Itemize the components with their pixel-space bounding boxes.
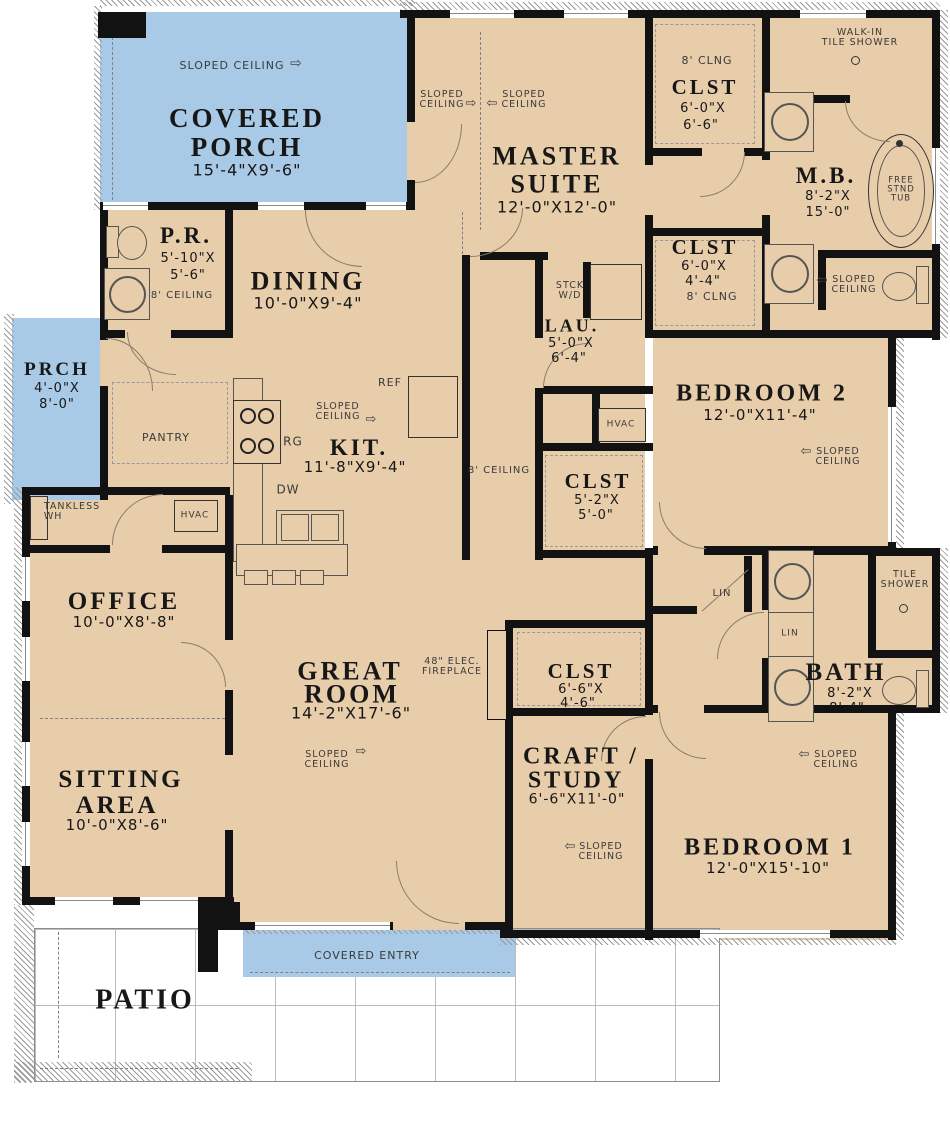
toilet-tank <box>916 266 929 304</box>
room-label-covered-porch: PORCH <box>191 133 304 161</box>
wall <box>868 556 876 658</box>
pantry-shelving <box>112 382 228 464</box>
room-dims-master-closet2: 6'-0"X <box>681 260 727 274</box>
sloped-ceiling-text: CEILING <box>579 852 624 862</box>
room-dims-prch: 8'-0" <box>39 398 75 412</box>
sloped-ceiling-label: SLOPED CEILING <box>180 60 285 72</box>
sloped-ceiling-text: CEILING <box>305 760 350 770</box>
sloped-ceiling-label: SLOPEDCEILING <box>832 275 877 295</box>
room-dims-hall-closet: 5'-2"X <box>574 494 620 508</box>
room-label-craft-study: STUDY <box>528 768 624 793</box>
door-opening <box>225 640 233 690</box>
door-opening <box>407 122 415 180</box>
wall <box>653 606 697 614</box>
room-dims-kitchen: 11'-8"X9'-4" <box>304 460 407 476</box>
sloped-ceiling-text: CEILING <box>420 100 465 110</box>
linen-label: LIN <box>712 589 731 600</box>
sloped-ceiling-label: SLOPEDCEILING <box>420 90 465 110</box>
sloped-ceiling-text: CEILING <box>832 285 877 295</box>
sloped-ceiling-text: CEILING <box>502 100 547 110</box>
room-label-bedroom2: BEDROOM 2 <box>676 381 848 406</box>
patio-left-hatch <box>14 905 34 1083</box>
wall <box>818 250 940 258</box>
arrow-right-icon: ⇨ <box>466 97 477 111</box>
tub-text: TUB <box>887 194 915 203</box>
room-dims-craft-closet: 6'-6"X <box>558 683 604 697</box>
wall <box>162 545 226 553</box>
sink-basin <box>281 514 309 541</box>
exterior-hatch <box>4 314 14 504</box>
stool-icon <box>244 570 268 585</box>
ceiling-break-line <box>480 32 481 230</box>
toilet-icon <box>117 226 147 260</box>
stool-icon <box>300 570 324 585</box>
room-label-dining: DINING <box>251 267 366 294</box>
arrow-right-icon: ⇨ <box>290 57 302 72</box>
window <box>700 930 830 938</box>
window <box>22 557 30 601</box>
sloped-ceiling-text: CEILING <box>816 457 861 467</box>
sloped-ceiling-text: CEILING <box>814 760 859 770</box>
room-dims-master-bath: 8'-2"X <box>805 190 851 204</box>
room-label-craft-study: CRAFT / <box>523 744 639 769</box>
wall <box>198 930 218 972</box>
floor-office-sitting <box>30 495 225 897</box>
wall <box>888 705 940 713</box>
refrigerator-label: REF <box>378 377 402 389</box>
fireplace-icon <box>487 630 507 720</box>
burner-icon <box>258 438 274 454</box>
window <box>888 407 896 542</box>
hvac-label: HVAC <box>607 420 636 429</box>
room-dims-laundry: 5'-0"X <box>548 337 594 351</box>
sink-icon <box>774 563 811 600</box>
door-opening <box>645 165 653 215</box>
room-label-office: OFFICE <box>68 589 180 615</box>
wall <box>462 255 470 560</box>
linen-label: LIN <box>781 629 798 638</box>
room-label-sitting-area: SITTING <box>58 767 183 793</box>
door-opening <box>225 755 233 830</box>
sloped-ceiling-label: SLOPEDCEILING <box>814 750 859 770</box>
room-label-kitchen: KIT. <box>330 436 388 460</box>
toilet-tank <box>916 670 929 708</box>
sloped-ceiling-text: CEILING <box>233 59 284 72</box>
sloped-ceiling-label: SLOPEDCEILING <box>316 402 361 422</box>
room-label-master-bath: M.B. <box>796 164 857 188</box>
refrigerator-icon <box>408 376 458 438</box>
ceiling-height-label: 8' CEILING <box>151 291 213 302</box>
window <box>22 822 30 866</box>
room-label-bedroom1: BEDROOM 1 <box>684 835 856 860</box>
room-label-hall-closet: CLST <box>565 470 632 492</box>
chimney <box>98 12 146 38</box>
fireplace-label: 48" ELEC.FIREPLACE <box>422 657 482 677</box>
room-dims-craft-study: 6'-6"X11'-0" <box>529 793 626 808</box>
exterior-hatch <box>940 548 948 713</box>
stool-icon <box>272 570 296 585</box>
wall <box>932 548 940 713</box>
wall <box>407 10 415 210</box>
window <box>258 202 304 210</box>
room-dims-hall-closet: 5'-0" <box>578 509 614 523</box>
walkin-shower-label: WALK-INTILE SHOWER <box>822 28 899 48</box>
room-dims-bath: 8'-4" <box>829 702 865 716</box>
room-dims-pr: 5'-10"X <box>161 252 216 266</box>
room-dims-sitting-area: 10'-0"X8'-6" <box>66 818 169 834</box>
tub-faucet-icon <box>896 140 903 147</box>
room-dims-bath: 8'-2"X <box>827 687 873 701</box>
patio-bottom-hatch <box>14 1062 252 1082</box>
room-label-bath: BATH <box>806 660 887 686</box>
window <box>450 10 514 18</box>
room-dims-bedroom2: 12'-0"X11'-4" <box>703 408 816 424</box>
exterior-hatch <box>896 713 904 940</box>
stacked-washer-dryer-label: STCKW/D <box>556 281 584 301</box>
range-label: RG <box>283 436 303 449</box>
wall <box>225 495 233 905</box>
room-dims-office: 10'-0"X8'-8" <box>73 615 176 631</box>
room-label-pr: P.R. <box>160 224 212 248</box>
room-dims-dining: 10'-0"X9'-4" <box>254 296 363 313</box>
sink-icon <box>771 103 809 141</box>
range-icon <box>233 400 281 464</box>
wall <box>868 548 888 556</box>
exterior-hatch <box>896 338 904 548</box>
tub-label: FREESTNDTUB <box>887 177 915 204</box>
sink-icon <box>771 255 809 293</box>
arrow-left-icon: ⇦ <box>801 445 812 459</box>
window <box>255 922 390 930</box>
room-label-master-closet2: CLST <box>672 236 739 258</box>
room-dims-master-suite: 12'-0"X12'-0" <box>497 200 617 217</box>
arrow-left-icon: ⇦ <box>487 97 498 111</box>
wall <box>225 210 233 338</box>
wall <box>762 10 770 103</box>
door-opening <box>645 715 653 759</box>
arrow-right-icon: ⇨ <box>356 745 367 759</box>
window <box>22 637 30 681</box>
tankless-wh-label: TANKLESSWH <box>44 502 100 522</box>
ceiling-height-label: 8' CLNG <box>681 55 732 67</box>
floor-plan: SLOPED CEILING ⇨ COVERED PORCH 15'-4"X9'… <box>0 0 950 1123</box>
room-label-master-suite: MASTER <box>492 142 621 169</box>
room-label-covered-porch: COVERED <box>169 104 325 132</box>
wall <box>888 713 896 940</box>
stck-text: W/D <box>556 291 584 301</box>
wall <box>500 930 896 938</box>
room-dims-laundry: 6'-4" <box>551 352 587 366</box>
exterior-hatch <box>14 487 22 905</box>
exterior-hatch <box>400 2 940 10</box>
window <box>103 202 148 210</box>
arrow-right-icon: ⇨ <box>366 413 377 427</box>
sloped-ceiling-label: SLOPEDCEILING <box>502 90 547 110</box>
sink-basin <box>311 514 339 541</box>
window <box>800 10 866 18</box>
ceiling-height-label: 8' CLNG <box>686 291 737 303</box>
room-label-laundry: LAU. <box>545 317 600 336</box>
room-dims-craft-closet: 4'-6" <box>560 697 596 711</box>
door-opening <box>762 160 770 215</box>
exterior-hatch <box>100 0 415 6</box>
window <box>140 897 198 905</box>
pantry-label: PANTRY <box>142 432 190 444</box>
sloped-ceiling-label: SLOPEDCEILING <box>305 750 350 770</box>
walkin-shower-text: TILE SHOWER <box>822 38 899 48</box>
room-label-master-closet1: CLST <box>672 76 739 98</box>
window <box>55 897 113 905</box>
washer-dryer-icon <box>590 264 642 320</box>
room-label-master-suite: SUITE <box>510 170 603 197</box>
porch-dashed-line <box>112 22 113 200</box>
wall <box>744 556 752 612</box>
room-label-prch: PRCH <box>24 360 90 380</box>
shower-drain-icon <box>851 56 860 65</box>
exterior-hatch <box>940 10 948 338</box>
wall <box>535 255 543 560</box>
room-label-covered-entry: COVERED ENTRY <box>314 950 420 962</box>
room-dims-prch: 4'-0"X <box>34 382 80 396</box>
window <box>366 202 406 210</box>
window <box>22 742 30 786</box>
room-dims-master-closet2: 4'-4" <box>685 275 721 289</box>
covered-entry-dashed-line <box>250 972 510 973</box>
patio-dashed-line <box>58 932 59 1058</box>
wall <box>505 620 653 628</box>
room-dims-master-closet1: 6'-0"X <box>680 102 726 116</box>
room-dims-pr: 5'-6" <box>170 269 206 283</box>
tile-shower-text: SHOWER <box>881 580 930 590</box>
tankless-text: WH <box>44 512 100 522</box>
wall <box>198 902 240 930</box>
sink-icon <box>109 276 146 313</box>
hvac-label: HVAC <box>181 511 210 520</box>
ceiling-break-line <box>462 212 463 254</box>
wall <box>22 545 110 553</box>
door-opening <box>535 338 543 388</box>
wall <box>645 330 940 338</box>
arrow-left-icon: ⇦ <box>565 840 576 854</box>
tile-shower-label: TILESHOWER <box>881 570 930 590</box>
patio-dashed-line <box>40 1068 238 1069</box>
room-dims-master-closet1: 6'-6" <box>683 119 719 133</box>
wall <box>535 443 653 451</box>
ceiling-break-line <box>40 718 225 719</box>
sloped-ceiling-label: SLOPEDCEILING <box>816 447 861 467</box>
window <box>564 10 628 18</box>
room-dims-great-room: 14'-2"X17'-6" <box>291 706 411 723</box>
ceiling-height-label: 8' CEILING <box>468 466 530 477</box>
room-dims-master-bath: 15'-0" <box>805 206 850 220</box>
dishwasher-label: DW <box>276 484 299 497</box>
exterior-hatch <box>500 938 896 945</box>
burner-icon <box>240 408 256 424</box>
room-label-craft-closet: CLST <box>548 660 615 682</box>
fireplace-text: FIREPLACE <box>422 667 482 677</box>
burner-icon <box>258 408 274 424</box>
room-label-patio: PATIO <box>95 985 195 1014</box>
arrow-left-icon: ⇦ <box>817 274 828 288</box>
toilet-icon <box>882 272 916 301</box>
wall <box>535 550 653 558</box>
burner-icon <box>240 438 256 454</box>
sloped-ceiling-text: CEILING <box>316 412 361 422</box>
toilet-icon <box>882 676 916 705</box>
shower-drain-icon <box>899 604 908 613</box>
arrow-left-icon: ⇦ <box>799 748 810 762</box>
wall <box>22 487 230 495</box>
sloped-ceiling-text: SLOPED <box>180 59 229 72</box>
room-dims-covered-porch: 15'-4"X9'-6" <box>193 163 302 180</box>
wall <box>868 650 940 658</box>
room-dims-bedroom1: 12'-0"X15'-10" <box>706 861 830 877</box>
sloped-ceiling-label: SLOPEDCEILING <box>579 842 624 862</box>
